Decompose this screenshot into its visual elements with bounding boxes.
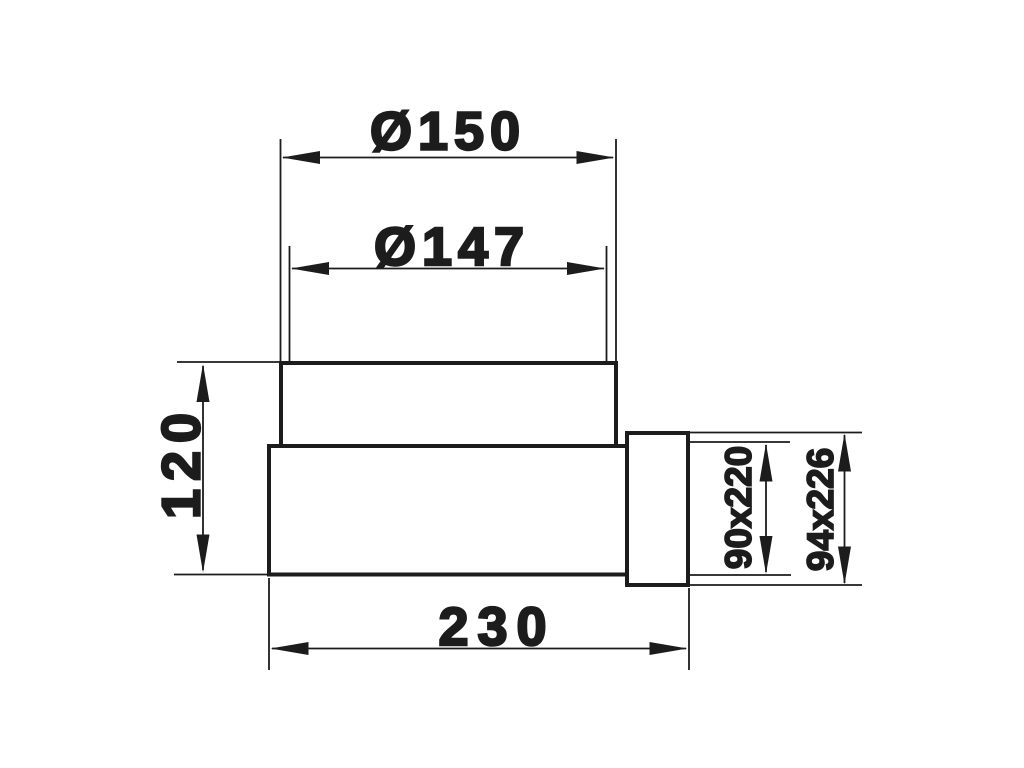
svg-text:Ø150: Ø150 xyxy=(370,102,526,162)
svg-text:Ø147: Ø147 xyxy=(374,217,530,277)
svg-text:90x220: 90x220 xyxy=(718,446,759,569)
svg-text:120: 120 xyxy=(152,405,212,519)
svg-text:230: 230 xyxy=(438,597,555,657)
svg-text:94x226: 94x226 xyxy=(800,448,841,571)
